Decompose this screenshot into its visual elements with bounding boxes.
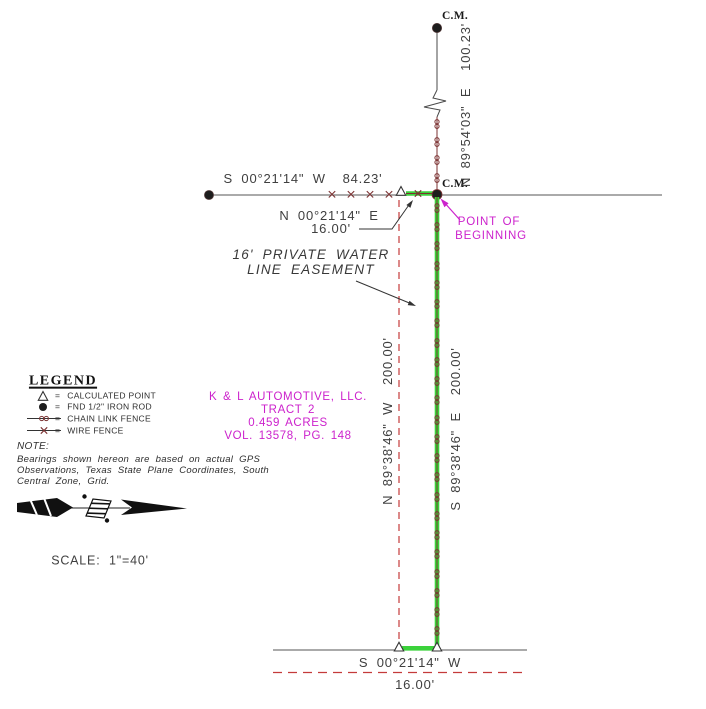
tie-distance-label: 16.00' <box>311 222 351 236</box>
pob-label-line2: BEGINNING <box>455 230 527 242</box>
found-monument-dot <box>432 23 441 32</box>
north-tie-bearing-label: N 89°54'03" E 100.23' <box>459 23 473 187</box>
legend-item-wire-fence: =WIRE FENCE <box>55 426 124 435</box>
south-line-distance-label: 16.00' <box>395 678 435 692</box>
found-iron-rod-dot <box>205 191 214 200</box>
legend-item-chain-link: =CHAIN LINK FENCE <box>55 414 151 423</box>
plat-linework <box>0 0 706 709</box>
easement-leader-arrow <box>356 281 416 306</box>
scale-label: SCALE: 1"=40' <box>51 554 149 567</box>
easement-east-green-line <box>435 197 439 646</box>
owner-name: K & L AUTOMOTIVE, LLC. <box>209 391 367 403</box>
found-iron-rod-dot <box>39 403 47 411</box>
owner-volume: VOL. 13578, PG. 148 <box>224 430 351 442</box>
owner-acres: 0.459 ACRES <box>248 417 328 429</box>
south-line-bearing-label: S 00°21'14" W <box>359 656 461 670</box>
legend-item-iron-rod: =FND 1/2" IRON ROD <box>55 403 152 412</box>
west-boundary-bearing-label: N 89°38'46" W 200.00' <box>381 337 395 505</box>
legend-item-calculated-point: =CALCULATED POINT <box>55 392 156 401</box>
north-tie-line <box>424 23 446 190</box>
calculated-point-triangle <box>396 187 405 196</box>
calculated-point-triangle <box>38 392 47 401</box>
cm-label-top: C.M. <box>442 10 468 22</box>
survey-plat: C.M. C.M. N 89°54'03" E 100.23' S 00°21'… <box>0 0 706 709</box>
east-boundary-bearing-label: S 89°38'46" E 200.00' <box>449 347 463 510</box>
legend-title: LEGEND <box>29 375 97 390</box>
note-body: Bearings shown hereon are based on actua… <box>17 454 269 487</box>
break-symbol <box>424 90 446 117</box>
pob-label-line1: POINT OF <box>458 216 521 228</box>
west-line-bearing-label: S 00°21'14" W 84.23' <box>224 172 383 186</box>
note-title: NOTE: <box>17 442 49 453</box>
easement-label-line2: LINE EASEMENT <box>247 263 375 277</box>
north-arrow <box>17 494 187 522</box>
north-boundary-line <box>205 187 663 200</box>
easement-label-line1: 16' PRIVATE WATER <box>232 248 389 262</box>
owner-tract: TRACT 2 <box>261 404 315 416</box>
